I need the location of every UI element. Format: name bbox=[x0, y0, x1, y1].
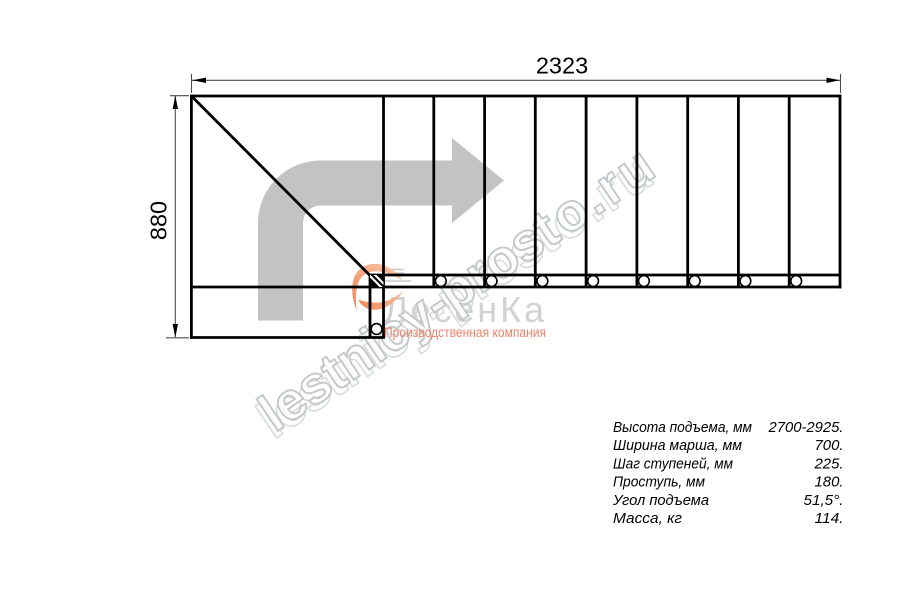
svg-text:180.: 180. bbox=[815, 474, 844, 491]
svg-text:Высота подъема, мм: Высота подъема, мм bbox=[613, 419, 752, 436]
svg-text:114.: 114. bbox=[815, 510, 844, 527]
svg-text:Ширина марша, мм: Ширина марша, мм bbox=[613, 437, 742, 454]
svg-text:700.: 700. bbox=[815, 437, 844, 454]
svg-text:225.: 225. bbox=[814, 455, 844, 472]
svg-text:Угол подъема: Угол подъема bbox=[612, 492, 709, 509]
svg-text:2323: 2323 bbox=[536, 53, 588, 79]
svg-text:Проступь, мм: Проступь, мм bbox=[613, 474, 705, 491]
svg-text:51,5°.: 51,5°. bbox=[804, 492, 844, 509]
svg-text:2700-2925.: 2700-2925. bbox=[768, 419, 844, 436]
svg-text:Шаг ступеней, мм: Шаг ступеней, мм bbox=[613, 455, 733, 472]
svg-text:Производственная компания: Производственная компания bbox=[384, 325, 546, 340]
svg-text:880: 880 bbox=[146, 201, 172, 240]
svg-text:Масса, кг: Масса, кг bbox=[613, 510, 683, 527]
